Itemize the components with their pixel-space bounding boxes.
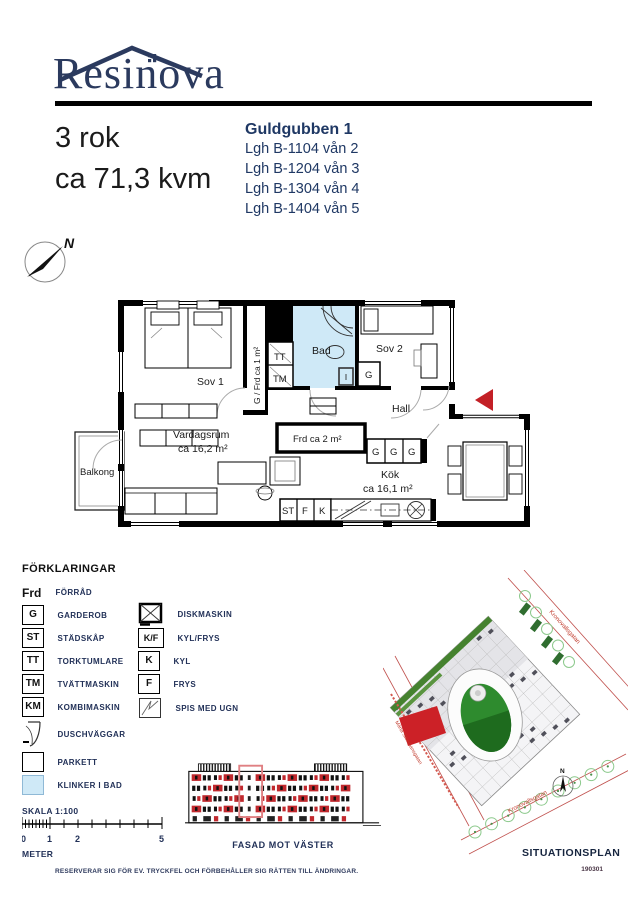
facade-label: FASAD MOT VÄSTER [183,840,383,850]
logo-roof-icon [50,38,220,84]
legend-item-parkett: PARKETT [22,752,97,774]
shower-walls-icon [22,720,44,748]
torktumlare-symbol: TT [22,651,44,671]
compass-north-label: N [64,235,75,251]
unit-label-tm: TM [273,374,287,385]
garderob-symbol: G [22,605,44,625]
unit-label-k: K [319,506,326,517]
scale-tick-0: 0 [22,834,26,844]
footer-code: 190301 [581,866,603,873]
floor-plan: Sov 1 Sov 2 Bad Hall Vardagsrum ca 16,2 … [65,292,535,534]
floorplan-document: Resinova 3 rok ca 71,3 kvm Guldgubben 1 … [0,0,631,898]
closet-label-g: G [365,370,372,381]
torktumlare-label: TORKTUMLARE [57,657,123,666]
room-label-kok: Kök [381,469,400,481]
legend-item-garderob: G GARDEROB [22,605,107,627]
room-label-bad: Bad [312,345,331,357]
closet-label-g: G [408,447,415,458]
storage-label-frd2: Frd ca 2 m² [293,434,342,445]
scale-tick-1: 1 [47,834,52,844]
tvattmaskin-symbol: TM [22,674,44,694]
scale-label: SKALA 1:100 [22,806,182,816]
diskmaskin-label: DISKMASKIN [177,610,232,619]
unit-label-tt: TT [274,352,286,363]
room-label-sov1: Sov 1 [197,376,224,388]
entrance-arrow [475,389,493,411]
rooms-count: 3 rok [55,118,211,159]
kyl-label: KYL [173,657,190,666]
site-compass-icon: N [553,768,573,796]
legend-item-tvattmaskin: TM TVÄTTMASKIN [22,674,119,696]
legend-item-klinker: KLINKER I BAD [22,775,122,797]
closet-strip-label: G / Frd ca 1 m² [252,347,262,404]
duschvaggar-label: DUSCHVÄGGAR [57,730,125,739]
closet-label-g: G [372,447,379,458]
kylfrys-label: KYL/FRYS [177,634,219,643]
legend-item-spis: SPIS MED UGN [138,697,238,719]
kyl-symbol: K [138,651,160,671]
tvattmaskin-label: TVÄTTMASKIN [57,680,119,689]
hall-cabinet [310,398,336,414]
forrad-key: Frd [22,586,44,600]
unit-label-f: F [302,506,308,517]
apartment-area: ca 71,3 kvm [55,159,211,200]
forrad-label: FÖRRÅD [55,588,92,597]
apartment-id: Lgh B-1204 vån 3 [245,159,359,179]
building-name: Guldgubben 1 [245,121,359,139]
dishwasher-icon [138,602,164,626]
header-divider [55,101,592,106]
legend-item-kombimaskin: KM KOMBIMASKIN [22,697,120,719]
stadskap-symbol: ST [22,628,44,648]
dining-set [448,442,522,500]
siteplan-label: SITUATIONSPLAN [522,847,620,859]
footer-disclaimer: RESERVERAR SIG FÖR EV. TRYCKFEL OCH FÖRB… [55,868,358,875]
legend-item-stadskap: ST STÄDSKÅP [22,628,105,650]
roof-railing [314,764,346,772]
frys-label: FRYS [173,680,196,689]
kombimaskin-symbol: KM [22,697,44,717]
stove-icon [138,697,162,719]
situation-plan: Kronovallsgatan Märta Stenmansgatan Kron… [383,570,628,865]
parkett-label: PARKETT [57,758,97,767]
street-name: Kronovallsgatan [507,790,548,815]
apartment-id: Lgh B-1104 vån 2 [245,139,359,159]
legend-item-forrad: Frd FÖRRÅD [22,584,92,606]
bedroom1-furniture [135,301,231,418]
scale-tick-5: 5 [159,834,164,844]
building-info: Guldgubben 1 Lgh B-1104 vån 2 Lgh B-1204… [245,121,359,219]
legend-item-duschvaggar: DUSCHVÄGGAR [22,720,125,742]
legend-item-diskmaskin: DISKMASKIN [138,602,232,624]
garderob-label: GARDEROB [57,611,107,620]
apartment-title: 3 rok ca 71,3 kvm [55,118,211,200]
legend-item-kyl: K KYL [138,651,191,673]
room-label-vardagsrum: Vardagsrum [173,429,230,441]
parkett-swatch [22,752,44,772]
facade-elevation [183,760,383,843]
compass-icon: N [18,230,82,290]
legend-item-torktumlare: TT TORKTUMLARE [22,651,123,673]
legend-item-kylfrys: K/F KYL/FRYS [138,628,220,650]
room-label-balkong: Balkong [80,467,114,478]
stadskap-label: STÄDSKÅP [57,634,104,643]
legend-heading: FÖRKLARINGAR [22,563,116,575]
apartment-id: Lgh B-1304 vån 4 [245,179,359,199]
apartment-id: Lgh B-1404 vån 5 [245,199,359,219]
roof-railing [198,764,230,772]
site-compass-north: N [560,768,565,775]
scale-tick-2: 2 [75,834,80,844]
room-area-kok: ca 16,1 m² [363,483,413,495]
room-label-sov2: Sov 2 [376,343,403,355]
unit-label-st: ST [282,506,294,517]
scale-bar: SKALA 1:100 0 1 2 5 METER [22,806,182,859]
klinker-swatch [22,775,44,795]
scale-unit: METER [22,849,182,859]
scale-ruler: 0 1 2 5 [22,816,182,846]
spis-label: SPIS MED UGN [175,704,238,713]
klinker-label: KLINKER I BAD [57,781,122,790]
room-label-hall: Hall [392,403,410,415]
room-area-vardagsrum: ca 16,2 m² [178,443,228,455]
kylfrys-symbol: K/F [138,628,164,648]
kombimaskin-label: KOMBIMASKIN [57,703,120,712]
legend-item-frys: F FRYS [138,674,196,696]
closet-label-g: G [390,447,397,458]
frys-symbol: F [138,674,160,694]
